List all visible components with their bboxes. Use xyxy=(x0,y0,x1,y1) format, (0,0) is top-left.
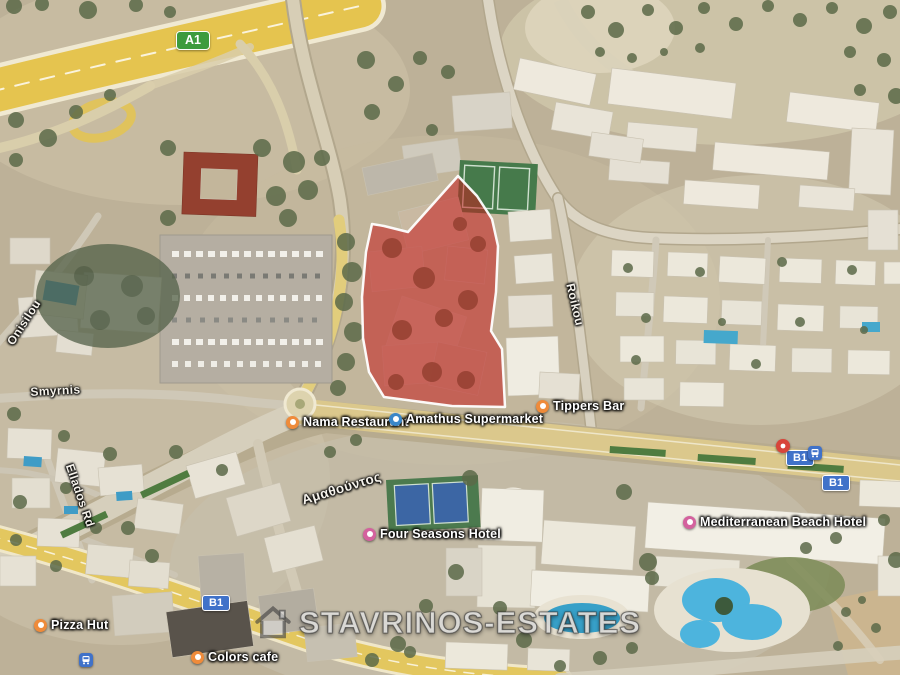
road-badge-b1: B1 xyxy=(202,595,230,611)
poi-label: Pizza Hut xyxy=(51,618,108,632)
bus-stop-icon[interactable] xyxy=(79,653,93,667)
satellite-map[interactable]: A1 B1 B1 B1 Onisilou Smyrnis Ellados Rd … xyxy=(0,0,900,675)
poi-label: Colors cafe xyxy=(208,650,278,664)
poi-colors-cafe[interactable]: Colors cafe xyxy=(191,650,278,664)
poi-label: Amathus Supermarket xyxy=(406,412,543,426)
watermark: STAVRINOS-ESTATES xyxy=(252,605,641,641)
hotel-icon xyxy=(363,528,376,541)
road-badge-a1: A1 xyxy=(176,31,210,50)
poi-pizza-hut[interactable]: Pizza Hut xyxy=(34,618,108,632)
supermarket-icon xyxy=(389,413,402,426)
poi-label: Mediterranean Beach Hotel xyxy=(700,515,866,529)
restaurant-icon xyxy=(286,416,299,429)
street-label-smyrnis: Smyrnis xyxy=(30,382,81,399)
map-scenery xyxy=(0,0,900,675)
bar-icon xyxy=(536,400,549,413)
hotel-icon xyxy=(683,516,696,529)
poi-label: Tippers Bar xyxy=(553,399,624,413)
poi-amathus-supermarket[interactable]: Amathus Supermarket xyxy=(389,412,543,426)
parking-lot xyxy=(160,235,332,383)
poi-dot-red-icon[interactable] xyxy=(776,439,790,453)
house-icon xyxy=(252,605,294,641)
watermark-brand: STAVRINOS-ESTATES xyxy=(299,605,641,641)
bus-stop-icon[interactable] xyxy=(808,446,822,460)
road-badge-b1: B1 xyxy=(822,475,850,491)
bus-glyph xyxy=(81,655,91,665)
poi-mediterranean-beach-hotel[interactable]: Mediterranean Beach Hotel xyxy=(683,515,866,529)
dot-glyph xyxy=(779,442,787,450)
restaurant-icon xyxy=(34,619,47,632)
poi-label: Four Seasons Hotel xyxy=(380,527,501,541)
bus-glyph xyxy=(810,448,820,458)
cafe-icon xyxy=(191,651,204,664)
poi-four-seasons-hotel[interactable]: Four Seasons Hotel xyxy=(363,527,501,541)
poi-tippers-bar[interactable]: Tippers Bar xyxy=(536,399,624,413)
